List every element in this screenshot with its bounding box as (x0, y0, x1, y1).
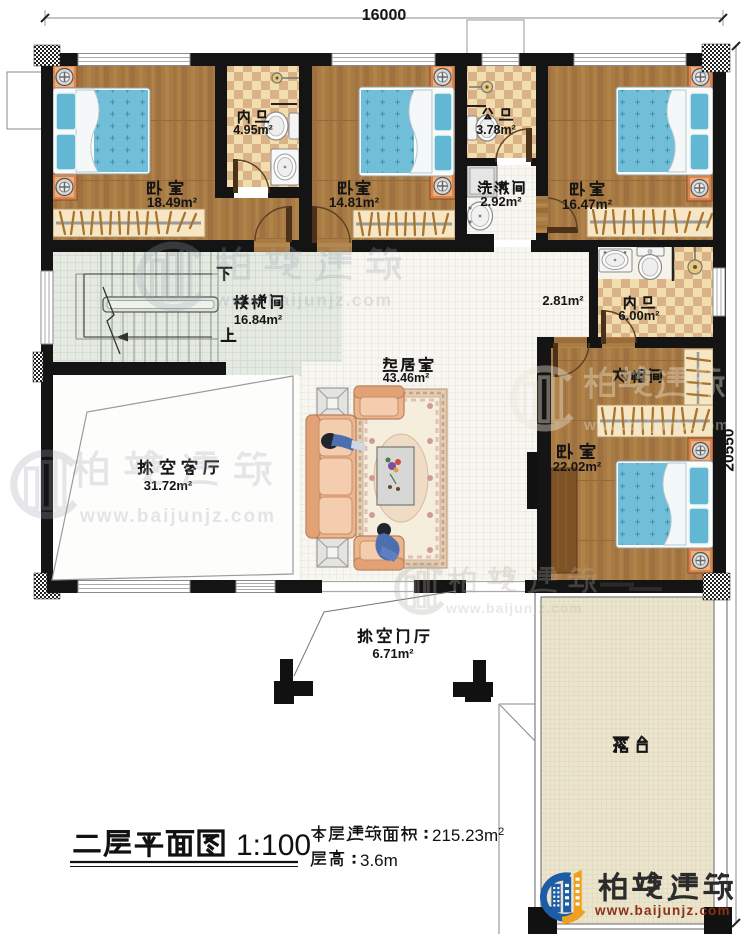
svg-text:www.baijunjz.com: www.baijunjz.com (445, 600, 583, 616)
svg-text:4.95m²: 4.95m² (233, 123, 273, 137)
svg-text:16.84m²: 16.84m² (234, 312, 283, 327)
svg-text:www.baijunjz.com: www.baijunjz.com (215, 290, 393, 310)
svg-text:3.6m: 3.6m (360, 851, 398, 870)
svg-text:www.baijunjz.com: www.baijunjz.com (594, 903, 731, 918)
svg-text:www.baijunjz.com: www.baijunjz.com (583, 417, 729, 434)
svg-text:22.02m²: 22.02m² (553, 459, 602, 474)
svg-text:1:100: 1:100 (236, 829, 311, 862)
svg-text:2.92m²: 2.92m² (480, 194, 522, 209)
svg-text:2.81m²: 2.81m² (542, 293, 584, 308)
svg-text:18.49m²: 18.49m² (147, 195, 198, 210)
svg-text:6.00m²: 6.00m² (618, 308, 660, 323)
svg-text:www.baijunjz.com: www.baijunjz.com (79, 506, 276, 527)
svg-text:215.23m2: 215.23m2 (432, 826, 504, 845)
svg-text:6.71m²: 6.71m² (372, 646, 414, 661)
svg-text:43.46m²: 43.46m² (383, 371, 430, 385)
svg-text:16000: 16000 (362, 7, 407, 24)
svg-text:20550: 20550 (721, 428, 738, 471)
svg-text:16.47m²: 16.47m² (562, 197, 613, 212)
svg-text:3.78m²: 3.78m² (476, 123, 516, 137)
svg-text:14.81m²: 14.81m² (329, 195, 380, 210)
